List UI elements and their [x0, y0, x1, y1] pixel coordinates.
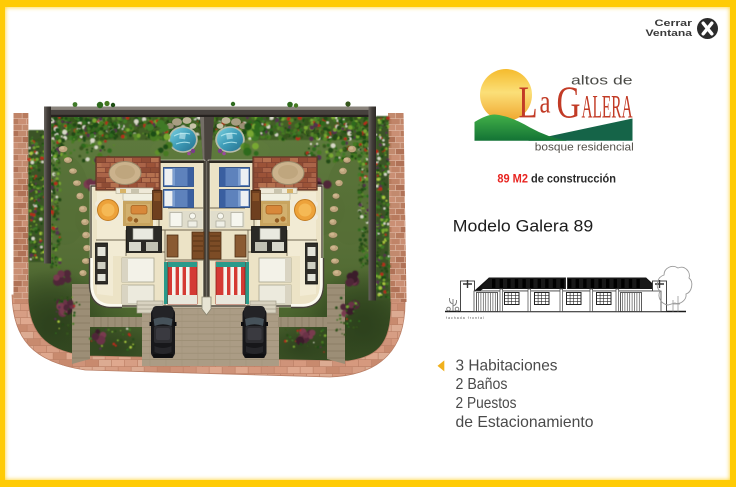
svg-text:fachada frontal: fachada frontal [446, 316, 485, 320]
svg-text:a: a [540, 85, 551, 121]
svg-text:2 Puestos: 2 Puestos [456, 395, 517, 412]
svg-text:bosque residencial: bosque residencial [535, 142, 634, 154]
svg-text:G: G [557, 77, 581, 128]
svg-text:ALERA: ALERA [582, 90, 633, 126]
svg-text:89 M2 de construcción: 89 M2 de construcción [497, 172, 616, 186]
svg-text:Ventana: Ventana [646, 28, 693, 39]
svg-text:3 Habitaciones: 3 Habitaciones [456, 357, 558, 374]
svg-text:de Estacionamiento: de Estacionamiento [456, 414, 594, 431]
svg-text:2 Baños: 2 Baños [456, 376, 508, 393]
svg-text:Modelo Galera 89: Modelo Galera 89 [453, 216, 593, 235]
svg-text:L: L [519, 77, 538, 128]
